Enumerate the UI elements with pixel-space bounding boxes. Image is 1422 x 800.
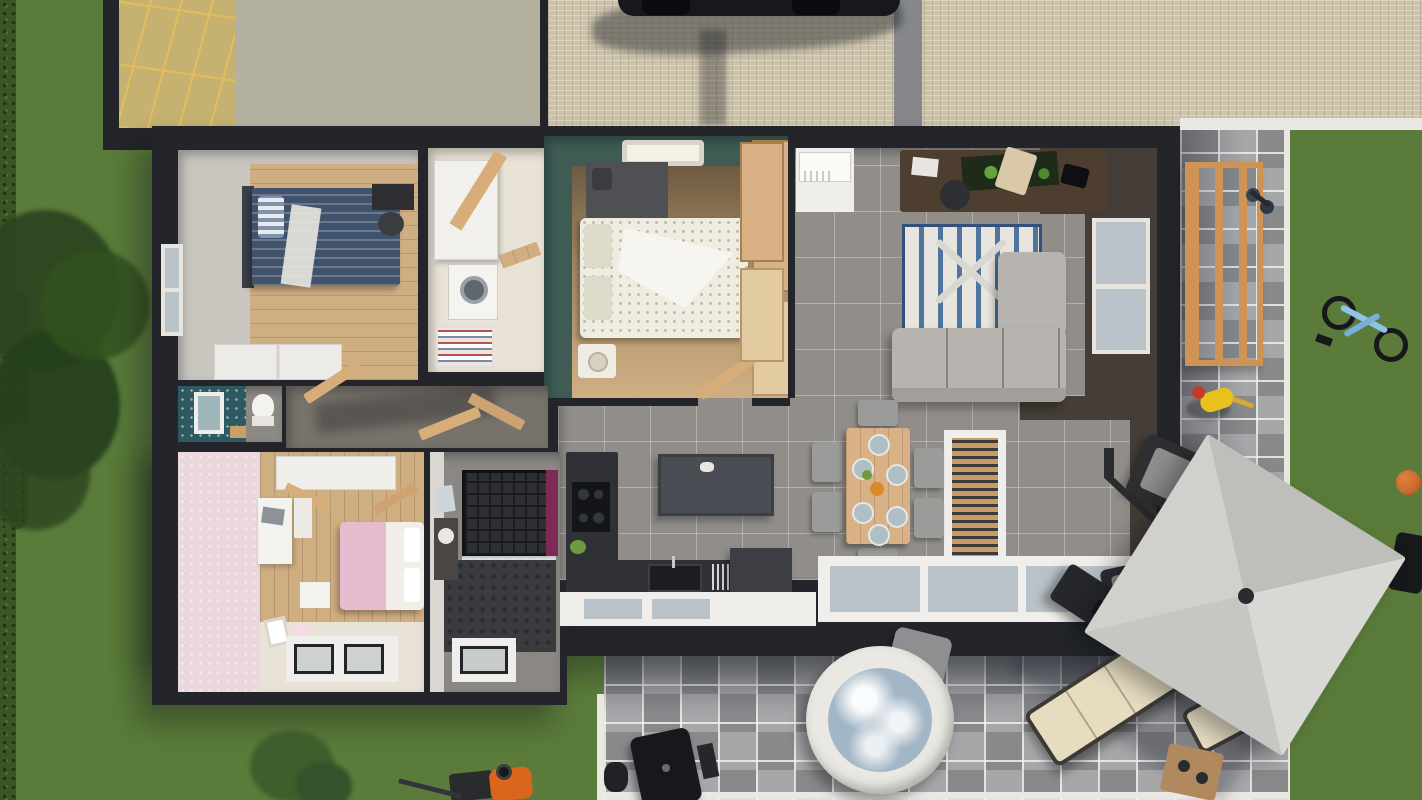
curb bbox=[1180, 118, 1422, 130]
bathroom-window-band bbox=[452, 638, 516, 682]
dining-chair bbox=[858, 400, 898, 426]
window-bench bbox=[952, 438, 998, 560]
dining-chair bbox=[812, 492, 842, 532]
plate bbox=[852, 502, 874, 524]
car-wheel bbox=[642, 0, 690, 15]
glass-pane bbox=[460, 646, 508, 674]
centerpiece-bowl bbox=[870, 482, 884, 496]
window-mullion bbox=[1096, 284, 1146, 289]
plate bbox=[886, 464, 908, 486]
desk-chair bbox=[378, 212, 404, 236]
dining-chair bbox=[914, 448, 944, 488]
dish-rack bbox=[712, 564, 730, 590]
window-mullion bbox=[165, 288, 179, 292]
desk-shelf bbox=[294, 498, 312, 538]
laundry-room bbox=[428, 148, 544, 372]
basketball bbox=[1396, 470, 1421, 495]
dining-chair bbox=[812, 442, 842, 482]
mower-wheel bbox=[496, 764, 512, 780]
corner-desk bbox=[499, 242, 541, 269]
entry-wardrobe-wood bbox=[740, 268, 784, 362]
mirror-frame bbox=[194, 392, 224, 434]
pink-room-window-band bbox=[286, 636, 398, 682]
master-south-wall bbox=[752, 398, 790, 406]
hot-tub-water bbox=[828, 668, 932, 772]
picture-window bbox=[1092, 218, 1150, 354]
bucket bbox=[604, 762, 628, 792]
kitchen-island bbox=[658, 454, 774, 516]
umbrella-hub bbox=[1238, 588, 1254, 604]
sink bbox=[438, 528, 454, 544]
master-south-wall bbox=[548, 398, 698, 406]
sofa-chaise bbox=[998, 252, 1066, 336]
white-dresser bbox=[214, 344, 342, 380]
pink-wallpaper bbox=[178, 452, 260, 692]
towel bbox=[434, 485, 455, 513]
faucet bbox=[672, 556, 675, 568]
pillow bbox=[404, 568, 420, 602]
floorplan-render bbox=[0, 0, 1422, 800]
dining-chair bbox=[914, 498, 944, 538]
washer-door bbox=[460, 276, 488, 304]
glass-pane bbox=[344, 644, 384, 674]
glass-pane bbox=[830, 566, 920, 612]
bicycle-pedal bbox=[1315, 334, 1333, 347]
garage-roof-flat bbox=[235, 0, 540, 128]
entry-wardrobe-wood bbox=[740, 142, 784, 262]
toilet bbox=[252, 394, 274, 418]
magenta-accent-wall bbox=[546, 470, 558, 556]
pillow bbox=[584, 224, 612, 268]
island-bowl bbox=[700, 462, 714, 472]
toilet-tank bbox=[252, 416, 274, 426]
wood-coffee-table bbox=[1160, 743, 1225, 800]
child-cap bbox=[1192, 386, 1205, 399]
curb bbox=[597, 694, 604, 800]
glass-pane bbox=[928, 566, 1018, 612]
plate bbox=[868, 434, 890, 456]
kitchen-plant bbox=[570, 540, 586, 554]
coffee-cup bbox=[1196, 772, 1208, 784]
glass-pane bbox=[584, 599, 642, 619]
glass-pane bbox=[294, 644, 334, 674]
car-shadow bbox=[700, 30, 726, 125]
plate bbox=[886, 506, 908, 528]
cooktop bbox=[572, 482, 610, 532]
coffee-cup bbox=[1178, 760, 1190, 772]
hallway bbox=[286, 386, 548, 448]
bedroom-side-window bbox=[161, 244, 183, 336]
tree-canopy bbox=[40, 250, 150, 360]
ac-unit bbox=[799, 152, 851, 182]
speaker bbox=[592, 168, 612, 190]
garden-bush bbox=[296, 762, 352, 800]
nightstand-lamp bbox=[588, 352, 608, 372]
plate bbox=[868, 524, 890, 546]
laptop bbox=[261, 507, 285, 526]
bicycle-wheel bbox=[1374, 328, 1408, 362]
sofa-back-cushions bbox=[892, 388, 1066, 402]
master-east-wall bbox=[788, 136, 795, 398]
nightstand bbox=[300, 582, 330, 608]
black-desk bbox=[372, 184, 414, 210]
desk-chair bbox=[940, 180, 970, 210]
kitchen-window-band bbox=[558, 592, 816, 626]
paper-stack bbox=[911, 157, 939, 178]
bbq-lid-knob bbox=[662, 764, 670, 772]
wc-shelf bbox=[230, 426, 246, 438]
glass-pane bbox=[652, 599, 710, 619]
striped-pillow bbox=[258, 196, 284, 238]
wc bbox=[178, 386, 282, 442]
car-wheel bbox=[792, 0, 840, 15]
walk-in-shower bbox=[462, 470, 556, 558]
garage-roof-yellow bbox=[119, 0, 235, 128]
kids-bedroom-blue bbox=[178, 150, 418, 380]
storage-shelf bbox=[436, 326, 494, 368]
kitchen-sink bbox=[648, 564, 702, 592]
pillow bbox=[404, 528, 420, 562]
pillow bbox=[584, 276, 612, 320]
centerpiece-plant bbox=[862, 470, 872, 480]
